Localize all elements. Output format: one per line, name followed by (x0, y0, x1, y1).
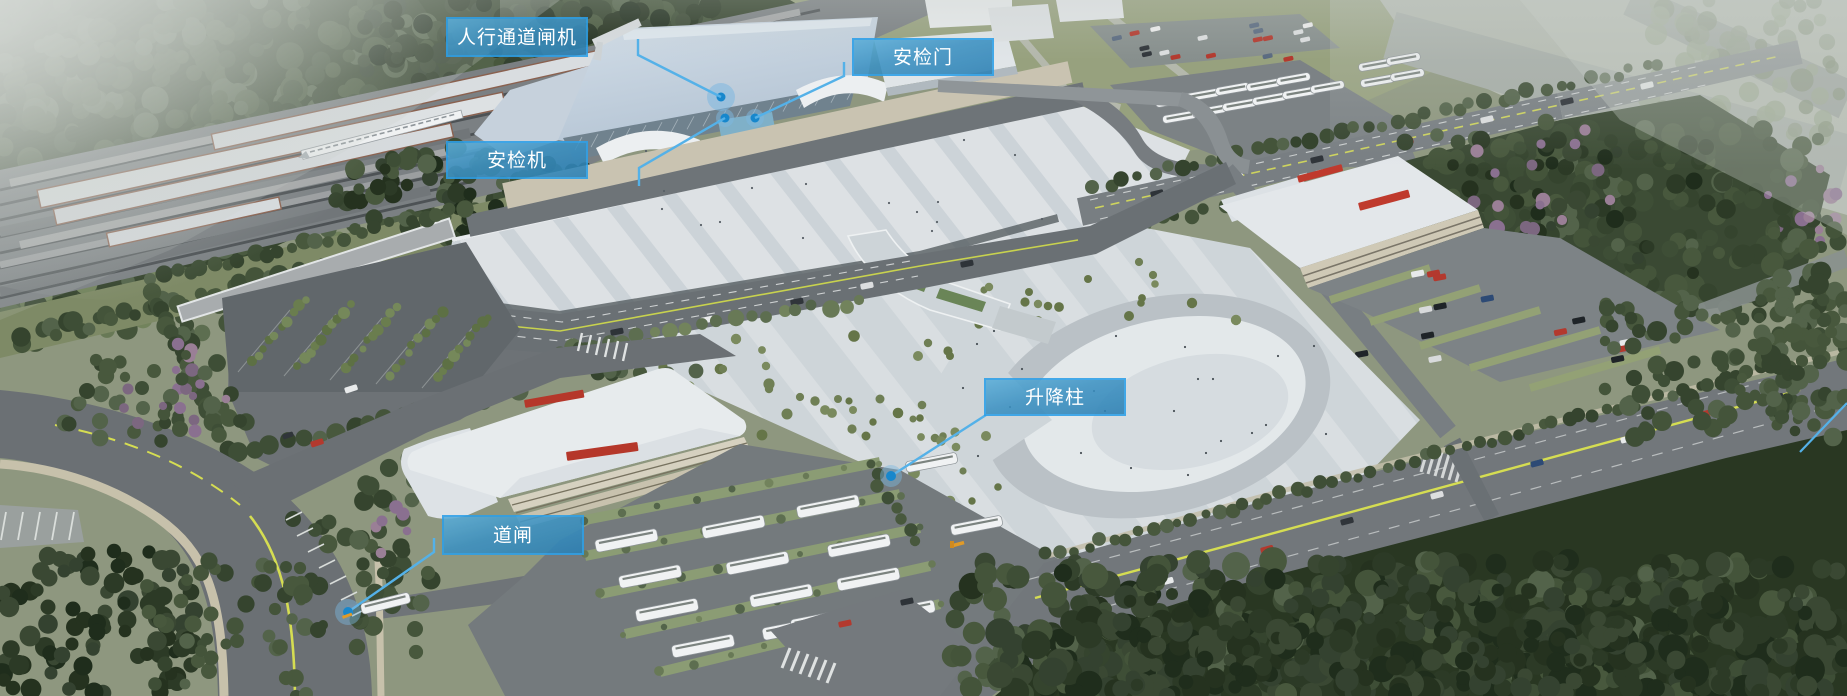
svg-text:升降柱: 升降柱 (1025, 387, 1085, 409)
svg-text:安检机: 安检机 (487, 150, 547, 172)
svg-text:人行通道闸机: 人行通道闸机 (457, 27, 577, 49)
svg-text:道闸: 道闸 (493, 525, 533, 547)
svg-text:安检门: 安检门 (893, 47, 953, 69)
